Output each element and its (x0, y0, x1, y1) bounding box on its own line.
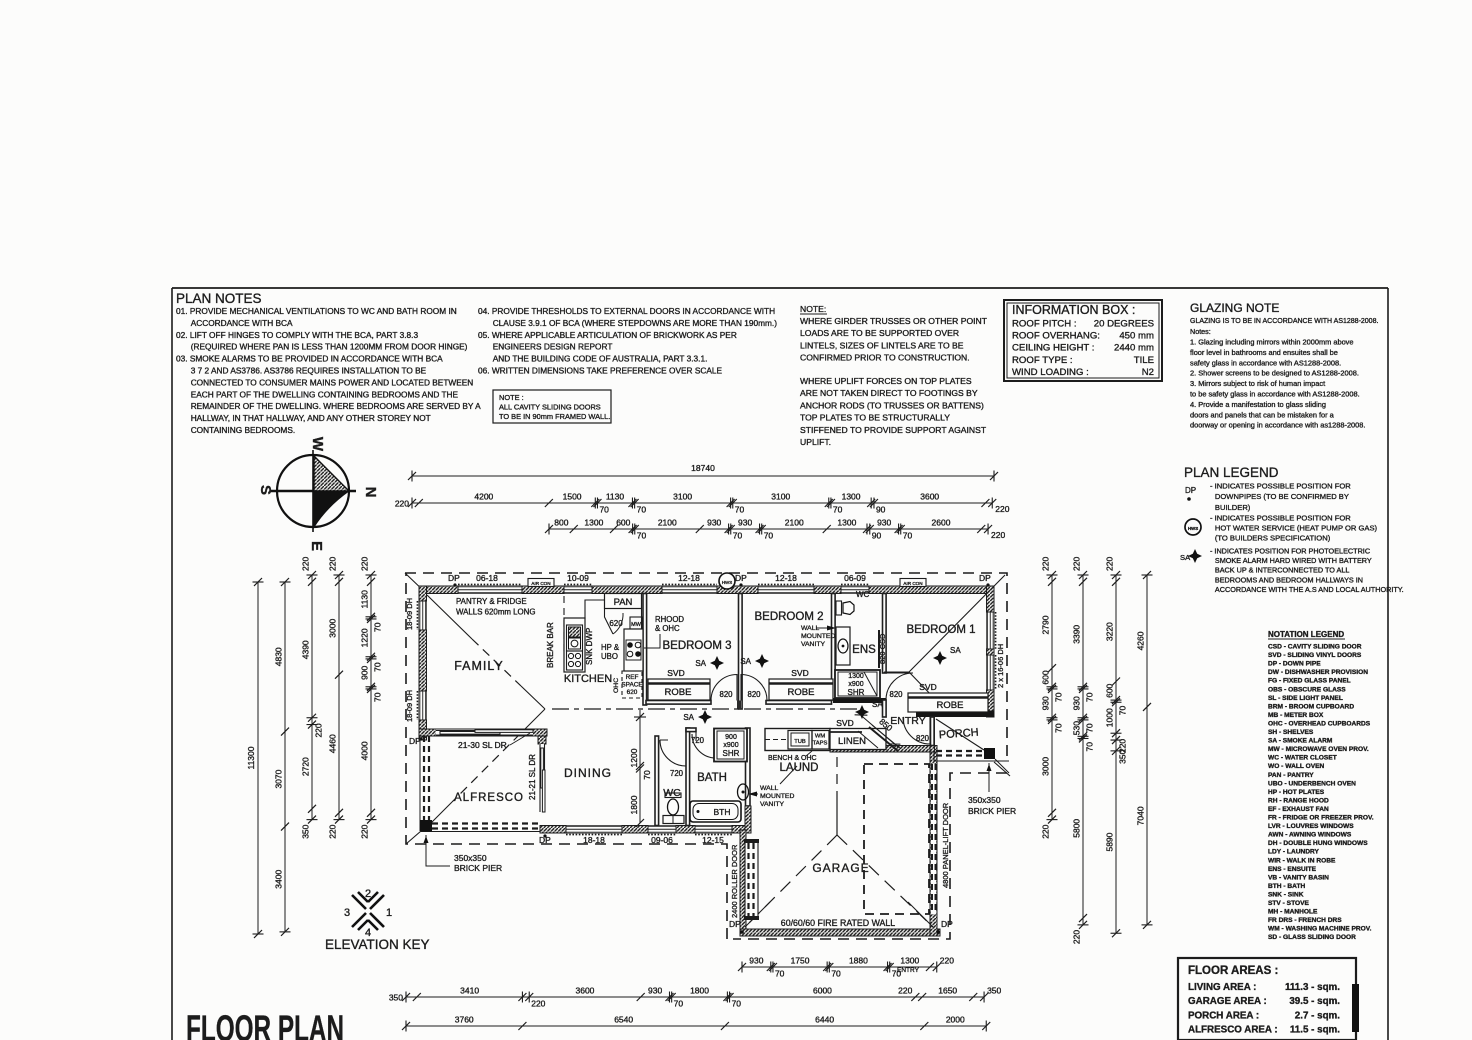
svg-text:3100: 3100 (771, 492, 790, 502)
svg-text:70: 70 (764, 531, 774, 541)
svg-text:70: 70 (732, 999, 742, 1009)
svg-text:WC: WC (856, 590, 870, 599)
svg-text:EACH PART OF THE DWELLING CONT: EACH PART OF THE DWELLING CONTAINING BED… (191, 389, 459, 399)
svg-text:3760: 3760 (455, 1015, 474, 1025)
svg-text:DP: DP (1185, 486, 1196, 495)
svg-text:930: 930 (738, 518, 752, 528)
svg-text:7040: 7040 (1136, 806, 1146, 825)
svg-text:LOADS ARE TO BE SUPPORTED OVER: LOADS ARE TO BE SUPPORTED OVER (800, 328, 959, 338)
svg-text:2790: 2790 (1041, 615, 1051, 634)
svg-text:1300: 1300 (900, 956, 919, 966)
svg-text:4800 PANEL-LIFT DOOR: 4800 PANEL-LIFT DOOR (941, 802, 950, 888)
svg-text:FR - FRIDGE OR FREEZER PROV.: FR - FRIDGE OR FREEZER PROV. (1268, 815, 1374, 822)
svg-text:220: 220 (328, 557, 338, 571)
svg-text:TO BE IN 90mm FRAMED WALL.: TO BE IN 90mm FRAMED WALL. (499, 412, 610, 421)
svg-text:820: 820 (719, 690, 733, 699)
svg-text:1130: 1130 (606, 492, 625, 502)
svg-text:WIR - WALK IN ROBE: WIR - WALK IN ROBE (1268, 857, 1336, 864)
svg-text:SNK - SINK: SNK - SINK (1268, 891, 1304, 898)
svg-text:70: 70 (674, 999, 684, 1009)
svg-text:doors and panels that can be m: doors and panels that can be mistaken fo… (1190, 410, 1335, 419)
svg-text:90: 90 (876, 505, 886, 515)
svg-text:FLOOR AREAS :: FLOOR AREAS : (1188, 965, 1278, 977)
svg-text:PAN: PAN (614, 597, 633, 608)
svg-text:4. Provide a manifestation to: 4. Provide a manifestation to glass slid… (1190, 400, 1326, 409)
svg-text:2400 ROLLER DOOR: 2400 ROLLER DOOR (730, 844, 739, 918)
svg-text:220: 220 (531, 999, 545, 1009)
svg-text:2. Shower screens to be design: 2. Shower screens to be designed to AS12… (1190, 369, 1359, 378)
svg-text:720: 720 (691, 736, 705, 745)
svg-text:70: 70 (833, 505, 843, 515)
svg-text:220: 220 (940, 956, 954, 966)
svg-text:4830: 4830 (274, 647, 284, 666)
svg-text:SVD: SVD (836, 718, 853, 728)
svg-text:BATH: BATH (697, 772, 727, 784)
svg-text:NOTATION LEGEND: NOTATION LEGEND (1268, 630, 1344, 639)
svg-text:01. PROVIDE MECHANICAL VENTILA: 01. PROVIDE MECHANICAL VENTILATIONS TO W… (176, 306, 457, 316)
svg-text:11.5 - sqm.: 11.5 - sqm. (1290, 1025, 1340, 1036)
svg-text:SA: SA (683, 713, 694, 722)
svg-text:PLAN LEGEND: PLAN LEGEND (1184, 465, 1279, 480)
svg-text:1300: 1300 (842, 492, 861, 502)
svg-text:SA: SA (872, 700, 883, 709)
svg-text:1000: 1000 (1105, 708, 1115, 727)
svg-text:BTH: BTH (714, 807, 731, 817)
svg-text:WM: WM (815, 734, 825, 740)
svg-text:BEDROOMS AND BEDROOM HALLWAYS: BEDROOMS AND BEDROOM HALLWAYS IN (1215, 575, 1363, 584)
svg-text:930: 930 (749, 956, 763, 966)
svg-text:600: 600 (616, 518, 630, 528)
svg-text:VANITY: VANITY (760, 801, 785, 808)
svg-text:ALL CAVITY SLIDING DOORS: ALL CAVITY SLIDING DOORS (499, 403, 601, 412)
svg-text:220: 220 (1105, 557, 1115, 571)
svg-text:LIVING AREA :: LIVING AREA : (1188, 982, 1256, 993)
svg-text:SVD: SVD (791, 668, 808, 678)
svg-text:3100: 3100 (673, 492, 692, 502)
svg-text:11300: 11300 (246, 746, 256, 769)
svg-text:SNK DWP: SNK DWP (585, 628, 594, 665)
svg-text:70: 70 (1085, 742, 1095, 752)
svg-text:FAMILY: FAMILY (454, 659, 504, 673)
svg-text:ENTRY: ENTRY (890, 715, 925, 727)
svg-text:WC - WATER CLOSET: WC - WATER CLOSET (1268, 755, 1337, 762)
svg-text:820: 820 (916, 734, 930, 743)
svg-text:DH - DOUBLE HUNG WINDOWS: DH - DOUBLE HUNG WINDOWS (1268, 840, 1368, 847)
svg-text:safety glass in accordance wit: safety glass in accordance with AS1288-2… (1190, 358, 1341, 367)
svg-text:21-30 SL DR: 21-30 SL DR (458, 740, 507, 750)
svg-text:70: 70 (637, 531, 647, 541)
svg-text:220: 220 (1072, 557, 1082, 571)
svg-text:LVR - LOUVRES WINDOWS: LVR - LOUVRES WINDOWS (1268, 823, 1354, 830)
svg-text:03. SMOKE ALARMS TO BE PROVIDE: 03. SMOKE ALARMS TO BE PROVIDED IN ACCOR… (176, 354, 443, 364)
svg-text:AIR CON: AIR CON (903, 581, 922, 586)
svg-text:930: 930 (707, 518, 721, 528)
svg-text:SH - SHELVES: SH - SHELVES (1268, 729, 1314, 736)
svg-text:MW: MW (631, 622, 642, 628)
svg-text:- INDICATES POSSIBLE POSITION: - INDICATES POSSIBLE POSITION FOR (1210, 514, 1351, 523)
svg-text:FR DRS - FRENCH DRS: FR DRS - FRENCH DRS (1268, 917, 1342, 924)
svg-text:WALL: WALL (760, 785, 778, 792)
svg-text:PLAN NOTES: PLAN NOTES (176, 291, 262, 306)
svg-text:1300: 1300 (848, 673, 864, 680)
svg-text:2440 mm: 2440 mm (1114, 343, 1154, 354)
svg-text:ACCORDANCE WITH THE A.S AND LO: ACCORDANCE WITH THE A.S AND LOCAL AUTHOR… (1215, 585, 1404, 594)
svg-text:70: 70 (1054, 723, 1064, 733)
svg-text:06. WRITTEN DIMENSIONS TAKE PR: 06. WRITTEN DIMENSIONS TAKE PREFERENCE O… (478, 366, 723, 376)
svg-text:ALFRESCO: ALFRESCO (454, 792, 524, 804)
svg-text:SVD: SVD (919, 682, 936, 692)
svg-text:3410: 3410 (460, 986, 479, 996)
svg-text:350x350: 350x350 (454, 853, 487, 863)
svg-text:70: 70 (735, 505, 745, 515)
svg-text:N2: N2 (1142, 367, 1154, 378)
svg-text:3600: 3600 (576, 986, 595, 996)
svg-text:05. WHERE APPLICABLE ARTICULAT: 05. WHERE APPLICABLE ARTICULATION OF BRI… (478, 330, 737, 340)
svg-text:HOT WATER SERVICE (HEAT PUMP O: HOT WATER SERVICE (HEAT PUMP OR GAS) (1215, 524, 1378, 533)
svg-text:BEDROOM 3: BEDROOM 3 (662, 640, 731, 652)
svg-text:350: 350 (389, 993, 403, 1003)
svg-text:BUILDER): BUILDER) (1215, 503, 1251, 512)
svg-text:1300: 1300 (837, 518, 856, 528)
svg-text:3220: 3220 (1105, 622, 1115, 641)
svg-text:70: 70 (373, 692, 383, 702)
svg-text:ROBE: ROBE (937, 700, 964, 711)
svg-text:900: 900 (360, 665, 370, 679)
svg-text:SA: SA (740, 657, 751, 666)
svg-text:DINING: DINING (564, 766, 612, 780)
svg-text:5800: 5800 (1072, 819, 1082, 838)
svg-text:FG - FIXED GLASS PANEL: FG - FIXED GLASS PANEL (1268, 678, 1351, 685)
svg-text:GLAZING NOTE: GLAZING NOTE (1190, 301, 1279, 315)
svg-text:REF: REF (626, 674, 639, 681)
svg-text:SA: SA (1180, 553, 1191, 562)
svg-text:NOTE :: NOTE : (499, 393, 524, 402)
svg-text:930: 930 (1041, 696, 1051, 710)
svg-text:350: 350 (1118, 749, 1128, 763)
svg-text:5890: 5890 (1105, 832, 1115, 851)
svg-text:2600: 2600 (932, 518, 951, 528)
svg-text:3 7 2 AND AS3786. AS3786 REQUI: 3 7 2 AND AS3786. AS3786 REQUIRES INSTAL… (191, 366, 427, 376)
svg-text:WALLS 620mm LONG: WALLS 620mm LONG (456, 608, 536, 617)
svg-text:BENCH & OHC: BENCH & OHC (768, 755, 817, 762)
svg-text:WHERE GIRDER TRUSSES OR OTHER: WHERE GIRDER TRUSSES OR OTHER POINT (800, 316, 988, 326)
svg-text:1750: 1750 (791, 956, 810, 966)
svg-text:OHC - OVERHEAD CUPBOARDS: OHC - OVERHEAD CUPBOARDS (1268, 720, 1371, 727)
svg-text:HP &: HP & (601, 643, 620, 652)
svg-text:WM - WASHING MACHINE PROV.: WM - WASHING MACHINE PROV. (1268, 926, 1372, 933)
svg-text:(REQUIRED WHERE PAN IS LESS TH: (REQUIRED WHERE PAN IS LESS THAN 1200MM … (191, 342, 468, 352)
svg-text:900: 900 (725, 734, 737, 741)
svg-text:1650: 1650 (938, 986, 957, 996)
svg-text:1800: 1800 (629, 795, 639, 814)
svg-text:GLAZING IS TO BE IN ACCORDANCE: GLAZING IS TO BE IN ACCORDANCE WITH AS12… (1190, 318, 1378, 325)
svg-text:DP: DP (409, 736, 421, 746)
svg-text:INFORMATION BOX :: INFORMATION BOX : (1012, 303, 1135, 317)
svg-text:930: 930 (877, 518, 891, 528)
svg-text:MB - METER BOX: MB - METER BOX (1268, 712, 1324, 719)
svg-text:TUB: TUB (794, 739, 806, 745)
svg-text:2100: 2100 (658, 518, 677, 528)
svg-text:04. PROVIDE THRESHOLDS TO EXTE: 04. PROVIDE THRESHOLDS TO EXTERNAL DOORS… (478, 306, 775, 316)
svg-text:111.3 - sqm.: 111.3 - sqm. (1285, 982, 1340, 993)
svg-text:06-09: 06-09 (844, 573, 866, 583)
svg-text:LAUND: LAUND (780, 762, 819, 774)
svg-text:TILE: TILE (1134, 355, 1154, 366)
svg-text:1130: 1130 (360, 590, 370, 609)
svg-text:STIFFENED TO PROVIDE SUPPORT A: STIFFENED TO PROVIDE SUPPORT AGAINST (800, 425, 987, 435)
svg-text:4460: 4460 (328, 734, 338, 753)
svg-text:3000: 3000 (1041, 757, 1051, 776)
svg-text:N: N (362, 487, 379, 498)
svg-text:820: 820 (889, 690, 903, 699)
svg-text:3390: 3390 (1072, 625, 1082, 644)
svg-text:UBO - UNDERBENCH OVEN: UBO - UNDERBENCH OVEN (1268, 780, 1356, 787)
svg-text:LINTELS, SIZES OF LINTELS ARE: LINTELS, SIZES OF LINTELS ARE TO BE (800, 340, 964, 350)
svg-text:ELEVATION KEY: ELEVATION KEY (325, 937, 430, 952)
svg-text:- INDICATES POSSIBLE POSITION: - INDICATES POSSIBLE POSITION FOR (1210, 482, 1351, 491)
svg-text:BTH - BATH: BTH - BATH (1268, 883, 1305, 890)
svg-text:70: 70 (373, 662, 383, 672)
svg-text:SA - SMOKE ALARM: SA - SMOKE ALARM (1268, 738, 1333, 745)
svg-text:UPLIFT.: UPLIFT. (800, 437, 831, 447)
svg-text:450 mm: 450 mm (1119, 331, 1154, 342)
svg-text:70: 70 (1085, 723, 1095, 733)
svg-text:PANTRY & FRIDGE: PANTRY & FRIDGE (456, 597, 527, 606)
svg-text:ENS - ENSUITE: ENS - ENSUITE (1268, 866, 1317, 873)
svg-text:RHOOD: RHOOD (655, 615, 684, 624)
svg-text:VANITY: VANITY (801, 641, 826, 648)
svg-text:600: 600 (1105, 683, 1115, 697)
svg-text:60/60/60 FIRE RATED WALL: 60/60/60 FIRE RATED WALL (781, 918, 896, 928)
svg-text:SHR: SHR (723, 749, 740, 758)
svg-text:4390: 4390 (301, 640, 311, 659)
svg-text:600: 600 (1041, 670, 1051, 684)
svg-text:LDY - LAUNDRY: LDY - LAUNDRY (1268, 849, 1320, 856)
svg-text:DOWNPIPES (TO BE CONFIRMED BY: DOWNPIPES (TO BE CONFIRMED BY (1215, 492, 1349, 501)
svg-text:CONTAINING BEDROOMS.: CONTAINING BEDROOMS. (191, 425, 296, 435)
svg-text:1800: 1800 (690, 986, 709, 996)
svg-text:ROBE: ROBE (788, 687, 815, 698)
svg-text:SA: SA (695, 659, 706, 668)
svg-text:18-18: 18-18 (583, 835, 605, 845)
svg-text:STV - STOVE: STV - STOVE (1268, 900, 1310, 907)
svg-text:1: 1 (386, 907, 392, 919)
svg-text:SPACE: SPACE (621, 682, 642, 689)
svg-text:70: 70 (642, 770, 652, 780)
svg-text:CSD - CAVITY SLIDING DOOR: CSD - CAVITY SLIDING DOOR (1268, 644, 1362, 651)
svg-text:220: 220 (1072, 930, 1082, 944)
svg-text:4200: 4200 (474, 492, 493, 502)
svg-text:OHC: OHC (613, 678, 620, 693)
svg-text:SVD - SLIDING VINYL DOORS: SVD - SLIDING VINYL DOORS (1268, 652, 1362, 659)
svg-text:70: 70 (903, 531, 913, 541)
svg-text:WIND LOADING :: WIND LOADING : (1012, 367, 1089, 378)
svg-text:SL - SIDE LIGHT PANEL: SL - SIDE LIGHT PANEL (1268, 695, 1343, 702)
svg-text:MH - MANHOLE: MH - MANHOLE (1268, 909, 1318, 916)
svg-text:UBO: UBO (601, 652, 618, 661)
svg-text:1. Glazing including mirrors w: 1. Glazing including mirrors within 2000… (1190, 338, 1354, 347)
svg-text:RH - RANGE HOOD: RH - RANGE HOOD (1268, 797, 1329, 804)
svg-text:2100: 2100 (785, 518, 804, 528)
svg-text:BRICK PIER: BRICK PIER (454, 863, 502, 873)
svg-text:ARE NOT TAKEN DIRECT TO FOOTIN: ARE NOT TAKEN DIRECT TO FOOTINGS BY (800, 388, 978, 398)
svg-text:ROBE: ROBE (665, 687, 692, 698)
svg-text:06-18: 06-18 (476, 573, 498, 583)
svg-text:TOP PLATES TO BE STRUCTURALLY: TOP PLATES TO BE STRUCTURALLY (800, 413, 950, 423)
svg-text:70: 70 (1085, 692, 1095, 702)
svg-text:x900: x900 (848, 681, 863, 688)
svg-text:1500: 1500 (563, 492, 582, 502)
svg-text:3400: 3400 (274, 870, 284, 889)
svg-text:TAPS: TAPS (813, 741, 828, 747)
svg-text:220: 220 (328, 824, 338, 838)
svg-text:ENS: ENS (852, 644, 876, 656)
svg-text:E: E (308, 541, 325, 551)
svg-text:220: 220 (301, 557, 311, 571)
svg-text:4260: 4260 (1136, 631, 1146, 650)
svg-text:SVD: SVD (667, 668, 684, 678)
svg-text:70: 70 (733, 531, 743, 541)
svg-text:530: 530 (1072, 721, 1082, 735)
svg-text:2.7 - sqm.: 2.7 - sqm. (1295, 1010, 1340, 1021)
svg-text:21-21 SL DR: 21-21 SL DR (528, 754, 537, 800)
svg-text:220: 220 (314, 723, 324, 737)
svg-text:3000: 3000 (328, 619, 338, 638)
svg-text:DW - DISHWASHER PROVISION: DW - DISHWASHER PROVISION (1268, 669, 1368, 676)
svg-text:12-18: 12-18 (678, 573, 700, 583)
svg-text:floor level in bathrooms and e: floor level in bathrooms and ensuites sh… (1190, 348, 1338, 357)
svg-text:18740: 18740 (691, 463, 715, 473)
svg-text:ROOF OVERHANG:: ROOF OVERHANG: (1012, 331, 1100, 342)
svg-text:1880: 1880 (849, 956, 868, 966)
svg-text:2: 2 (365, 888, 371, 900)
svg-text:AWN - AWNING WINDOWS: AWN - AWNING WINDOWS (1268, 832, 1352, 839)
svg-text:SA: SA (950, 646, 961, 655)
svg-text:ALFRESCO AREA :: ALFRESCO AREA : (1188, 1025, 1278, 1036)
svg-text:2000: 2000 (946, 1015, 965, 1025)
svg-text:WHERE UPLIFT FORCES ON TOP PLA: WHERE UPLIFT FORCES ON TOP PLATES (800, 376, 972, 386)
svg-text:18-09 DH: 18-09 DH (405, 598, 414, 630)
svg-text:REMAINDER OF THE DWELLING. WHE: REMAINDER OF THE DWELLING. WHERE BEDROOM… (191, 401, 481, 411)
svg-text:820: 820 (747, 690, 761, 699)
svg-text:90: 90 (872, 531, 882, 541)
svg-text:930: 930 (648, 986, 662, 996)
svg-text:HWS: HWS (1188, 526, 1198, 531)
svg-text:CEILING HEIGHT :: CEILING HEIGHT : (1012, 343, 1094, 354)
svg-text:70: 70 (831, 969, 841, 979)
svg-text:CONFIRMED PRIOR TO CONSTRUCTIO: CONFIRMED PRIOR TO CONSTRUCTION. (800, 353, 970, 363)
svg-text:CONNECTED TO CONSUMER MAINS PO: CONNECTED TO CONSUMER MAINS POWER AND LO… (191, 377, 474, 387)
svg-text:PAN - PANTRY: PAN - PANTRY (1268, 772, 1314, 779)
svg-text:350: 350 (987, 986, 1001, 996)
svg-text:12-18: 12-18 (775, 573, 797, 583)
svg-text:ROOF TYPE :: ROOF TYPE : (1012, 355, 1073, 366)
svg-text:220: 220 (395, 499, 409, 509)
svg-text:10-09: 10-09 (567, 573, 589, 583)
svg-text:70: 70 (599, 505, 609, 515)
svg-text:220: 220 (360, 824, 370, 838)
svg-text:EF - EXHAUST FAN: EF - EXHAUST FAN (1268, 806, 1329, 813)
svg-text:doorway or opening in accordan: doorway or opening in accordance with as… (1190, 421, 1365, 430)
svg-text:620: 620 (609, 619, 623, 628)
svg-text:70: 70 (373, 622, 383, 632)
svg-text:930: 930 (1072, 696, 1082, 710)
svg-text:ENTRY: ENTRY (897, 967, 920, 974)
svg-text:18-09 DH: 18-09 DH (405, 690, 414, 722)
svg-text:PORCH AREA :: PORCH AREA : (1188, 1010, 1259, 1021)
svg-text:820 CSD: 820 CSD (878, 633, 887, 664)
svg-text:WO - WALL OVEN: WO - WALL OVEN (1268, 763, 1325, 770)
svg-text:4000: 4000 (360, 741, 370, 760)
svg-text:Notes:: Notes: (1190, 327, 1211, 336)
svg-text:BACK UP & INTERCONNECTED TO AL: BACK UP & INTERCONNECTED TO ALL (1215, 566, 1350, 575)
svg-text:NOTE:: NOTE: (800, 304, 826, 314)
svg-text:DP: DP (735, 573, 747, 583)
svg-text:BRM - BROOM CUPBOARD: BRM - BROOM CUPBOARD (1268, 703, 1354, 710)
svg-text:ROOF PITCH :: ROOF PITCH : (1012, 319, 1077, 330)
svg-text:1200: 1200 (629, 748, 639, 767)
svg-text:DP: DP (979, 573, 991, 583)
svg-text:2720: 2720 (301, 757, 311, 776)
svg-text:FLOOR PLAN: FLOOR PLAN (186, 1008, 344, 1040)
svg-text:620: 620 (627, 689, 638, 696)
svg-text:800: 800 (554, 518, 568, 528)
svg-text:02. LIFT OFF HINGES TO COMPLY: 02. LIFT OFF HINGES TO COMPLY WITH THE B… (176, 330, 418, 340)
svg-text:BEDROOM 2: BEDROOM 2 (754, 611, 823, 623)
svg-text:SHR: SHR (848, 688, 865, 697)
svg-text:220: 220 (991, 530, 1005, 540)
svg-text:720: 720 (670, 769, 684, 778)
svg-text:350x350: 350x350 (968, 795, 1001, 805)
svg-text:3: 3 (344, 907, 350, 919)
svg-text:& OHC: & OHC (655, 624, 680, 633)
svg-text:2 x 16-06 DH: 2 x 16-06 DH (996, 644, 1005, 688)
svg-text:MW - MICROWAVE OVEN PROV.: MW - MICROWAVE OVEN PROV. (1268, 746, 1369, 753)
svg-text:220: 220 (995, 504, 1009, 514)
svg-text:220: 220 (1041, 824, 1051, 838)
svg-text:OBS - OBSCURE GLASS: OBS - OBSCURE GLASS (1268, 686, 1346, 693)
svg-text:S: S (257, 485, 274, 495)
svg-text:70: 70 (775, 969, 785, 979)
svg-text:VB - VANITY BASIN: VB - VANITY BASIN (1268, 874, 1329, 881)
svg-text:ACCORDANCE WITH BCA: ACCORDANCE WITH BCA (191, 318, 293, 328)
svg-text:MOUNTED: MOUNTED (801, 633, 835, 640)
svg-text:- INDICATES POSITION FOR PHOTO: - INDICATES POSITION FOR PHOTOELECTRIC (1210, 547, 1370, 556)
svg-text:220: 220 (898, 986, 912, 996)
svg-text:DP: DP (448, 573, 460, 583)
svg-text:AND THE BUILDING CODE OF AUSTR: AND THE BUILDING CODE OF AUSTRALIA, PART… (493, 354, 708, 364)
svg-text:70: 70 (1118, 706, 1128, 716)
svg-text:70: 70 (1054, 692, 1064, 702)
svg-text:SD - GLASS SLIDING DOOR: SD - GLASS SLIDING DOOR (1268, 934, 1356, 941)
svg-text:6000: 6000 (813, 986, 832, 996)
svg-text:1300: 1300 (584, 518, 603, 528)
svg-text:3600: 3600 (920, 492, 939, 502)
svg-text:BEDROOM 1: BEDROOM 1 (906, 624, 975, 636)
svg-text:220: 220 (1041, 557, 1051, 571)
svg-text:39.5 - sqm.: 39.5 - sqm. (1289, 996, 1340, 1007)
svg-text:BRICK PIER: BRICK PIER (968, 806, 1016, 816)
svg-text:12-15: 12-15 (702, 835, 724, 845)
svg-text:DP - DOWN PIPE: DP - DOWN PIPE (1268, 661, 1321, 668)
svg-text:AIR CON: AIR CON (531, 581, 550, 586)
svg-text:3070: 3070 (274, 769, 284, 788)
svg-text:1220: 1220 (360, 628, 370, 647)
svg-text:LINEN: LINEN (838, 736, 866, 747)
svg-text:SMOKE ALARM HARD WIRED WITH BA: SMOKE ALARM HARD WIRED WITH BATTERY (1215, 556, 1372, 565)
svg-text:HALLWAY, IN THAT HALLWAY, AND: HALLWAY, IN THAT HALLWAY, AND ANY OTHER … (191, 413, 431, 423)
svg-text:MOUNTED: MOUNTED (760, 793, 794, 800)
